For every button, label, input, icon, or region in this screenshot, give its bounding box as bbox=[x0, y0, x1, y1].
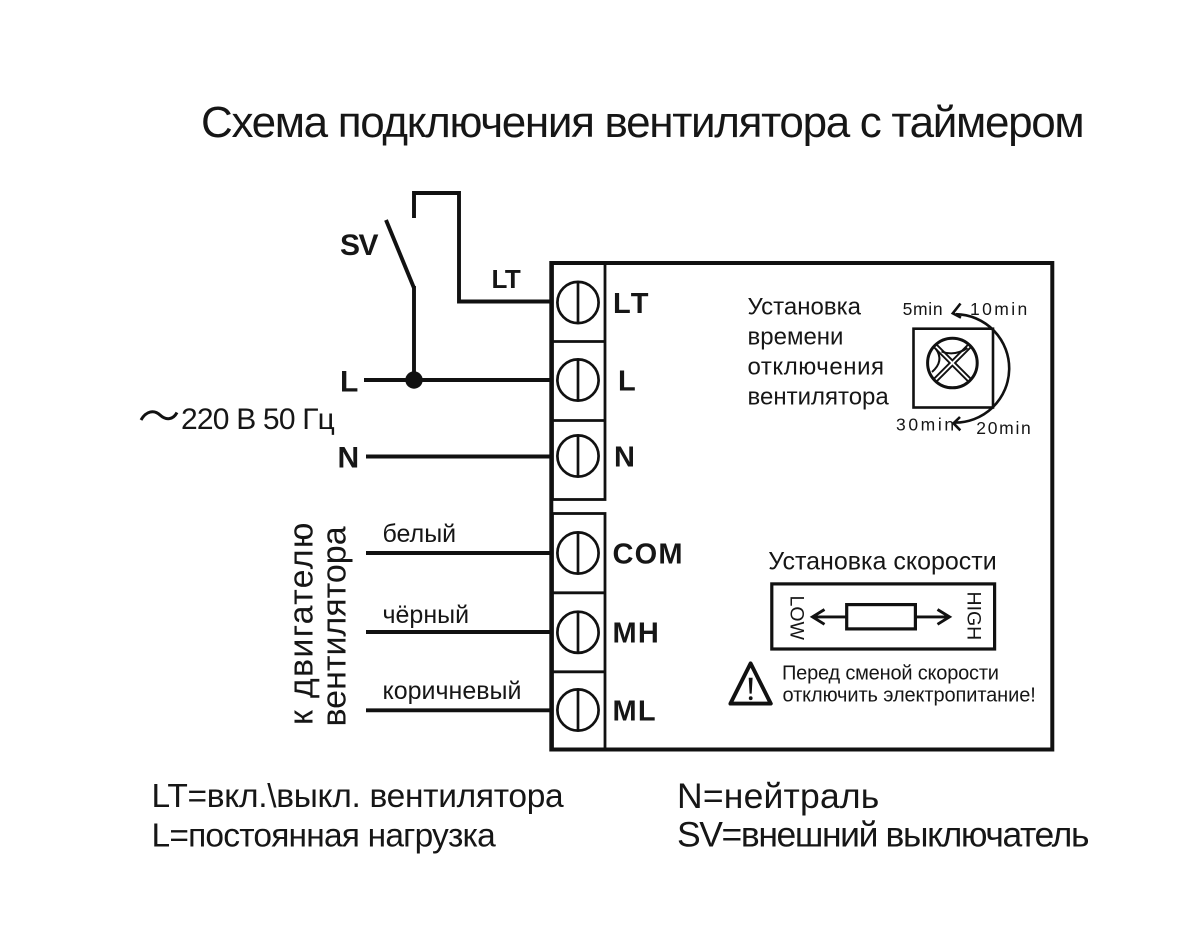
svg-text:MH: MH bbox=[613, 618, 661, 650]
svg-text:L: L bbox=[618, 365, 636, 397]
svg-text:220 В 50 Гц: 220 В 50 Гц bbox=[181, 403, 335, 436]
svg-text:HIGH: HIGH bbox=[963, 592, 985, 641]
svg-text:SV: SV bbox=[340, 229, 379, 262]
svg-text:Установка скорости: Установка скорости bbox=[768, 547, 996, 575]
svg-text:LT=вкл.\выкл. вентилятора: LT=вкл.\выкл. вентилятора bbox=[152, 778, 565, 815]
svg-text:N: N bbox=[338, 442, 360, 475]
svg-text:ML: ML bbox=[613, 695, 657, 727]
svg-text:20min: 20min bbox=[976, 418, 1032, 438]
svg-text:LOW: LOW bbox=[785, 596, 807, 641]
svg-text:30min: 30min bbox=[896, 415, 957, 435]
svg-text:N: N bbox=[614, 441, 635, 473]
svg-text:белый: белый bbox=[383, 520, 457, 548]
svg-text:SV=внешний выключатель: SV=внешний выключатель bbox=[677, 814, 1089, 854]
svg-text:отключить электропитание!: отключить электропитание! bbox=[783, 685, 1036, 707]
svg-text:L=постоянная нагрузка: L=постоянная нагрузка bbox=[152, 817, 497, 854]
svg-text:отключения: отключения bbox=[748, 354, 885, 381]
svg-text:COM: COM bbox=[613, 538, 684, 570]
svg-text:Схема подключения вентилятора: Схема подключения вентилятора с таймером bbox=[201, 98, 1083, 147]
svg-text:N=нейтраль: N=нейтраль bbox=[677, 776, 880, 816]
svg-text:10min: 10min bbox=[970, 299, 1030, 319]
svg-text:времени: времени bbox=[748, 324, 844, 351]
svg-text:вентилятора: вентилятора bbox=[316, 526, 354, 726]
svg-text:Перед сменой скорости: Перед сменой скорости bbox=[782, 663, 999, 685]
svg-text:вентилятора: вентилятора bbox=[748, 384, 890, 411]
svg-text:5min: 5min bbox=[903, 299, 944, 319]
svg-text:Установка: Установка bbox=[748, 294, 862, 321]
svg-text:L: L bbox=[340, 366, 358, 399]
svg-text:LT: LT bbox=[492, 264, 521, 294]
svg-text:LT: LT bbox=[613, 288, 651, 320]
svg-text:коричневый: коричневый bbox=[383, 677, 522, 705]
svg-text:чёрный: чёрный bbox=[383, 601, 470, 629]
